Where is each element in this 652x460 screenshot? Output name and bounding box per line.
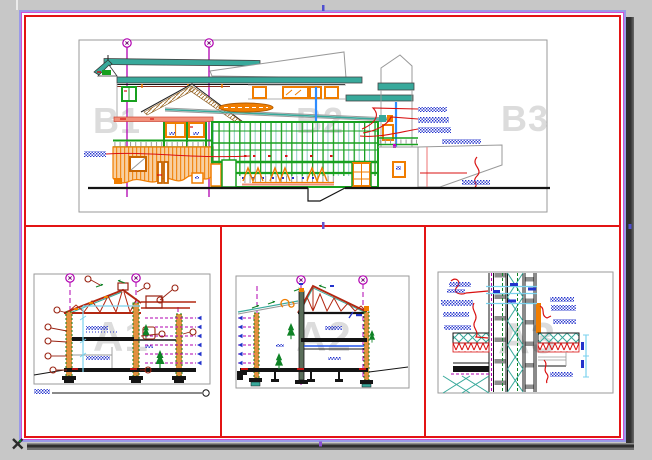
watermark-b3: B3	[501, 98, 549, 139]
level-marks-a2	[238, 316, 254, 365]
section-a1-viewport[interactable]: A1	[34, 274, 210, 384]
curtain-wall	[211, 122, 378, 187]
dimension-line-below-a1	[34, 389, 209, 396]
elevation-viewport[interactable]: B1 B2 B3	[79, 39, 550, 212]
orange-flashing	[536, 303, 541, 333]
tree	[287, 323, 295, 339]
ground-line	[88, 188, 550, 201]
tree	[275, 353, 283, 369]
tree	[369, 330, 375, 343]
corner-snap-dot	[19, 440, 21, 442]
detail-a3-viewport[interactable]: A3	[438, 272, 613, 393]
grid-bubble	[205, 39, 213, 47]
watermark-a1: A1	[93, 313, 149, 360]
tree	[156, 350, 165, 368]
grip-center[interactable]	[322, 222, 325, 229]
cad-canvas: B1 B2 B3	[0, 0, 652, 460]
grip-bottom-mid[interactable]	[319, 442, 322, 447]
sheet-drawing-layer: B1 B2 B3	[0, 0, 652, 460]
left-canopy-a2	[238, 300, 298, 314]
section-a2-viewport[interactable]: A2	[236, 276, 409, 388]
right-house	[378, 90, 418, 177]
grip-right-mid[interactable]	[629, 224, 632, 229]
grip-top-mid[interactable]	[322, 5, 325, 11]
grid-bubble	[123, 39, 131, 47]
truss-a2	[294, 285, 367, 319]
grip-bottom-left-cross[interactable]	[13, 439, 23, 449]
